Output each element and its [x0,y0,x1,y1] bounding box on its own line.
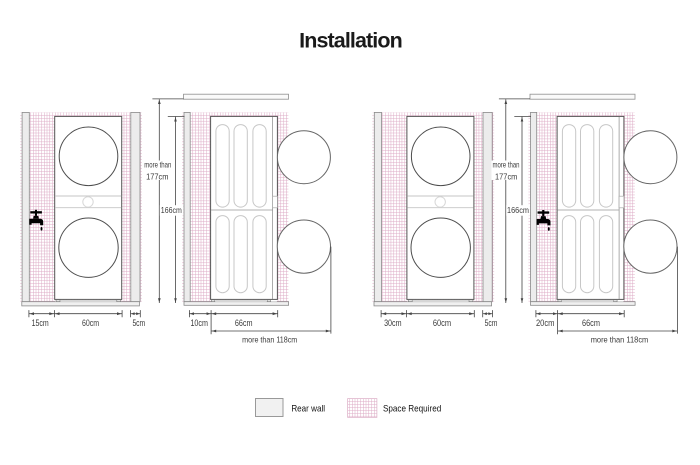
svg-text:20cm: 20cm [536,318,554,328]
svg-text:66cm: 66cm [235,318,253,328]
svg-text:60cm: 60cm [433,318,451,328]
svg-text:66cm: 66cm [582,318,600,328]
svg-text:166cm: 166cm [507,206,529,215]
svg-text:5cm: 5cm [485,318,498,328]
svg-text:15cm: 15cm [32,318,49,328]
svg-text:5cm: 5cm [132,318,145,328]
svg-text:more than 118cm: more than 118cm [242,336,297,345]
svg-text:60cm: 60cm [82,318,99,328]
svg-text:30cm: 30cm [384,318,401,328]
svg-text:Space Required: Space Required [383,404,441,414]
svg-text:Installation: Installation [299,28,402,52]
svg-text:10cm: 10cm [190,318,208,328]
svg-text:166cm: 166cm [161,206,182,215]
svg-text:Rear wall: Rear wall [291,404,325,414]
svg-text:177cm: 177cm [146,171,168,181]
svg-text:177cm: 177cm [495,171,517,181]
svg-text:more than: more than [144,161,171,170]
svg-text:more than: more than [492,161,519,170]
svg-text:more than 118cm: more than 118cm [591,336,649,345]
